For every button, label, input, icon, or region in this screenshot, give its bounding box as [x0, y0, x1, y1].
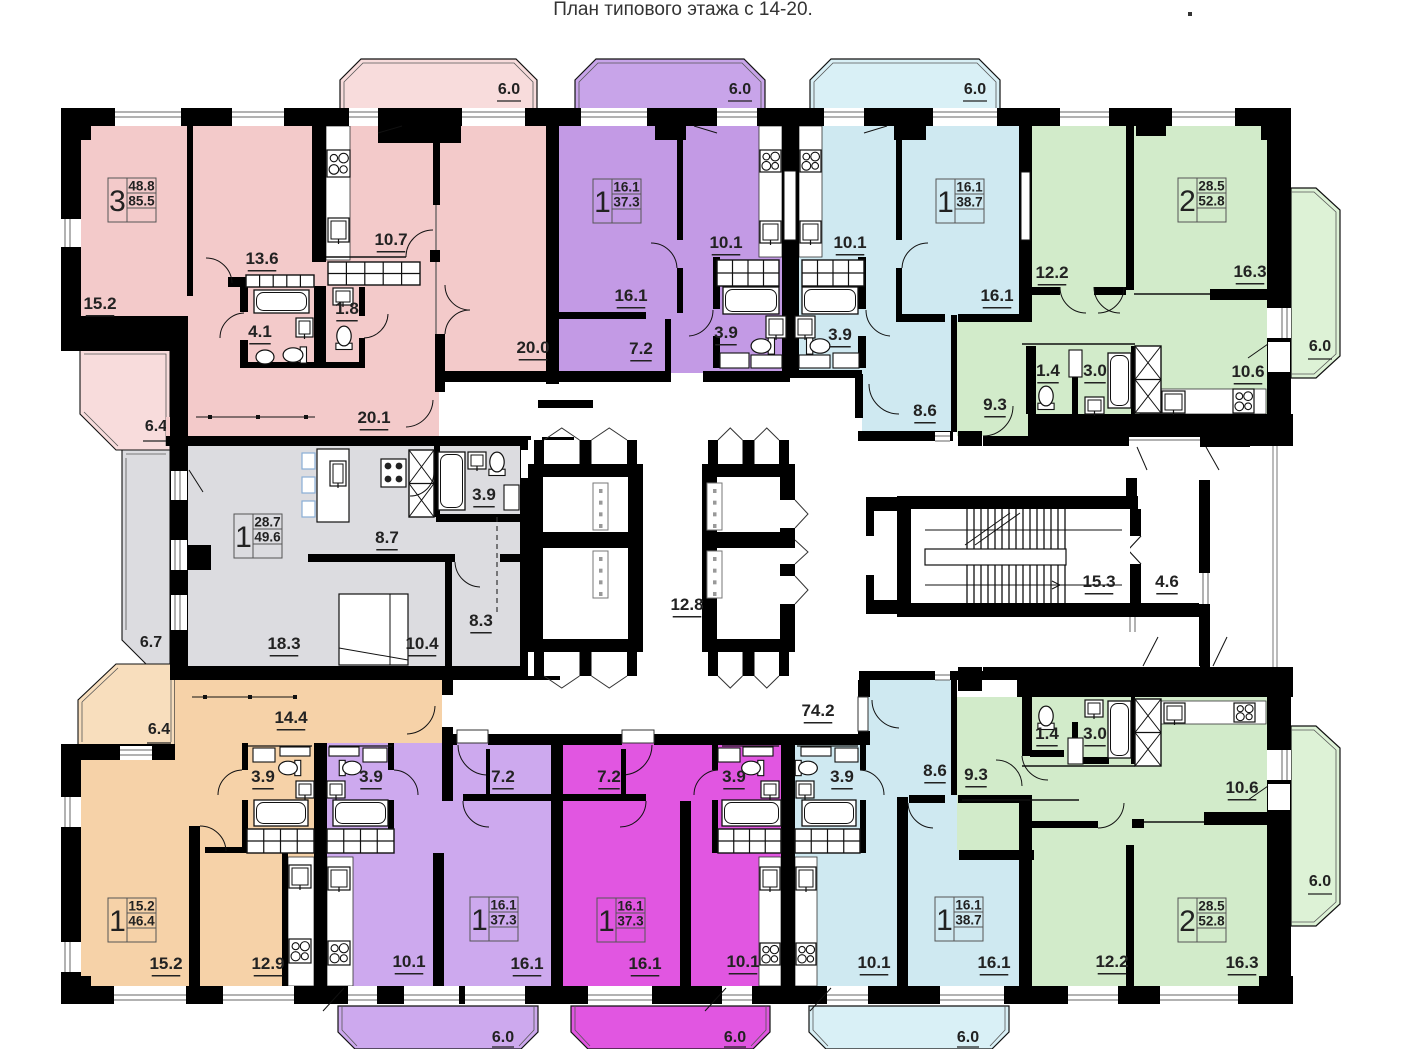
- svg-text:15.2: 15.2: [83, 294, 116, 313]
- svg-text:16.1: 16.1: [956, 180, 983, 195]
- svg-text:2: 2: [1179, 185, 1196, 218]
- svg-text:16.1: 16.1: [613, 180, 640, 195]
- svg-text:3.9: 3.9: [359, 767, 383, 786]
- svg-text:15.2: 15.2: [149, 954, 182, 973]
- svg-text:3.0: 3.0: [1083, 361, 1107, 380]
- svg-text:8.3: 8.3: [469, 611, 493, 630]
- svg-text:1: 1: [235, 521, 252, 554]
- svg-text:6.0: 6.0: [1309, 338, 1331, 355]
- svg-text:8.6: 8.6: [913, 401, 937, 420]
- svg-text:15.3: 15.3: [1082, 572, 1115, 591]
- svg-text:10.6: 10.6: [1225, 778, 1258, 797]
- svg-text:48.8: 48.8: [128, 179, 155, 194]
- svg-text:16.3: 16.3: [1225, 953, 1258, 972]
- svg-text:1.8: 1.8: [335, 299, 359, 318]
- svg-text:6.0: 6.0: [498, 81, 520, 98]
- svg-text:16.3: 16.3: [1233, 262, 1266, 281]
- svg-text:14.4: 14.4: [274, 708, 308, 727]
- svg-text:3.9: 3.9: [472, 485, 496, 504]
- svg-text:10.7: 10.7: [374, 230, 407, 249]
- svg-text:1: 1: [471, 904, 488, 937]
- svg-text:10.1: 10.1: [709, 233, 742, 252]
- svg-text:6.0: 6.0: [964, 81, 986, 98]
- svg-text:6.0: 6.0: [957, 1029, 979, 1046]
- svg-text:7.2: 7.2: [491, 767, 515, 786]
- svg-text:46.4: 46.4: [128, 914, 155, 929]
- svg-text:4.6: 4.6: [1155, 572, 1179, 591]
- svg-text:3: 3: [109, 185, 126, 218]
- svg-text:6.7: 6.7: [140, 634, 162, 651]
- svg-text:1.4: 1.4: [1035, 724, 1059, 743]
- svg-text:15.2: 15.2: [128, 899, 154, 914]
- svg-text:13.6: 13.6: [245, 249, 278, 268]
- svg-text:16.1: 16.1: [980, 286, 1013, 305]
- svg-text:1: 1: [109, 905, 126, 938]
- svg-text:52.8: 52.8: [1198, 194, 1225, 209]
- svg-text:74.2: 74.2: [801, 701, 834, 720]
- svg-text:16.1: 16.1: [628, 954, 661, 973]
- svg-text:6.0: 6.0: [729, 81, 751, 98]
- svg-text:6.0: 6.0: [492, 1029, 514, 1046]
- svg-text:6.0: 6.0: [724, 1029, 746, 1046]
- svg-text:20.1: 20.1: [357, 408, 390, 427]
- svg-text:3.9: 3.9: [830, 767, 854, 786]
- svg-text:20.0: 20.0: [516, 338, 549, 357]
- svg-text:16.1: 16.1: [977, 953, 1010, 972]
- svg-text:7.2: 7.2: [597, 767, 621, 786]
- svg-text:49.6: 49.6: [254, 530, 281, 545]
- svg-text:3.9: 3.9: [828, 325, 852, 344]
- svg-text:План типового этажа с 14-20.: План типового этажа с 14-20.: [553, 0, 813, 20]
- svg-text:28.5: 28.5: [1198, 179, 1225, 194]
- svg-text:38.7: 38.7: [955, 913, 981, 928]
- svg-text:1: 1: [937, 186, 954, 219]
- svg-text:6.4: 6.4: [145, 418, 167, 435]
- svg-text:10.4: 10.4: [405, 634, 439, 653]
- svg-text:7.2: 7.2: [629, 339, 653, 358]
- svg-text:9.3: 9.3: [983, 395, 1007, 414]
- svg-text:16.1: 16.1: [955, 898, 982, 913]
- svg-text:37.3: 37.3: [617, 914, 644, 929]
- svg-text:1.4: 1.4: [1036, 361, 1060, 380]
- svg-text:10.1: 10.1: [833, 233, 866, 252]
- svg-text:10.1: 10.1: [726, 952, 759, 971]
- svg-text:1: 1: [594, 186, 611, 219]
- svg-text:37.3: 37.3: [613, 195, 640, 210]
- svg-text:10.1: 10.1: [857, 953, 890, 972]
- svg-text:3.9: 3.9: [722, 767, 746, 786]
- svg-text:1: 1: [936, 904, 953, 937]
- svg-text:28.7: 28.7: [254, 515, 280, 530]
- svg-text:12.8: 12.8: [670, 595, 703, 614]
- svg-text:8.6: 8.6: [923, 761, 947, 780]
- svg-text:37.3: 37.3: [490, 913, 517, 928]
- svg-text:2: 2: [1179, 905, 1196, 938]
- svg-text:10.6: 10.6: [1231, 362, 1264, 381]
- svg-text:16.1: 16.1: [510, 954, 543, 973]
- svg-text:8.7: 8.7: [375, 528, 399, 547]
- svg-text:16.1: 16.1: [614, 286, 647, 305]
- svg-text:3.9: 3.9: [714, 323, 738, 342]
- svg-text:10.1: 10.1: [392, 952, 425, 971]
- svg-text:18.3: 18.3: [267, 634, 300, 653]
- svg-text:38.7: 38.7: [956, 195, 982, 210]
- svg-text:16.1: 16.1: [490, 898, 517, 913]
- svg-text:12.2: 12.2: [1095, 952, 1128, 971]
- svg-text:6.0: 6.0: [1309, 873, 1331, 890]
- svg-text:52.8: 52.8: [1198, 914, 1225, 929]
- svg-text:4.1: 4.1: [248, 322, 272, 341]
- svg-text:12.2: 12.2: [1035, 263, 1068, 282]
- svg-text:12.9: 12.9: [251, 954, 284, 973]
- svg-text:6.4: 6.4: [148, 721, 170, 738]
- svg-text:1: 1: [598, 905, 615, 938]
- svg-text:85.5: 85.5: [128, 194, 155, 209]
- svg-text:3.9: 3.9: [251, 767, 275, 786]
- svg-text:28.5: 28.5: [1198, 899, 1225, 914]
- svg-text:9.3: 9.3: [964, 765, 988, 784]
- svg-text:3.0: 3.0: [1083, 724, 1107, 743]
- svg-text:16.1: 16.1: [617, 899, 644, 914]
